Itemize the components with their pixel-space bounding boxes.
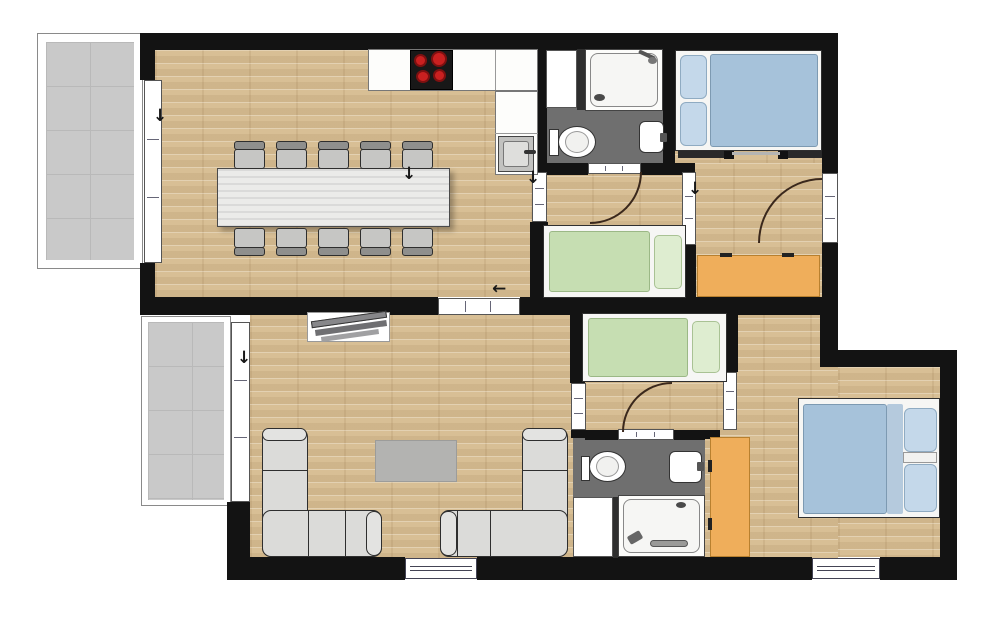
bed-green-lower-pillow (692, 321, 720, 373)
sofa-left-seam-2 (308, 511, 309, 556)
window-living (405, 558, 477, 579)
counter-seam-4 (495, 133, 538, 134)
burner-3 (416, 70, 430, 83)
wall-left-upper-a (140, 33, 155, 80)
bed-green-upper-pillow (654, 235, 682, 289)
chair-back (318, 247, 349, 256)
sofa-left-seam-3 (345, 511, 346, 556)
wardrobe-lower-handle-1 (708, 460, 712, 472)
entrance-door-frame (822, 173, 838, 243)
sofa-right-seam-2 (457, 511, 458, 556)
shower-upper-head (648, 57, 657, 64)
chair-seat (318, 228, 349, 248)
wall-divider-a (140, 297, 438, 315)
balcony-upper-tiles (46, 42, 134, 260)
kitchen-sink-basin (503, 141, 529, 167)
wardrobe-upper (697, 255, 820, 297)
arrow-corridor-right: ↓ (688, 181, 708, 201)
wall-right-upper-a (822, 33, 838, 173)
wall-framestub (571, 430, 585, 438)
counter-seam-3 (495, 50, 496, 90)
rug (375, 440, 457, 482)
bath-lower-cabinet (573, 497, 613, 557)
wall-bottom-a (227, 557, 405, 580)
bed-lower-shelf (903, 452, 937, 463)
burner-2 (431, 51, 447, 67)
chair-seat (234, 228, 265, 248)
toilet-upper-seat (565, 131, 589, 153)
arrow-balcony-upper: ↓ (153, 108, 173, 128)
wardrobe-upper-handle-1 (720, 253, 732, 257)
arrow-balcony-lower: ↓ (237, 350, 257, 370)
chair-back (234, 247, 265, 256)
sofa-left-seam-1 (263, 470, 307, 471)
sofa-left-cap-top (262, 428, 307, 441)
wardrobe-lower (710, 437, 750, 557)
bed-lower-pillow-1 (904, 408, 937, 452)
wall-bottom-c (880, 557, 957, 580)
arrow-kitchen: ↓ (402, 166, 422, 186)
chair-seat (318, 149, 349, 169)
chair-seat (276, 149, 307, 169)
burner-4 (433, 69, 446, 82)
bedroom-upper-threshold (732, 152, 780, 155)
wall-bathdoor-left (545, 163, 588, 175)
bath-upper-cabinet (546, 50, 577, 108)
bed-lower-mattress (803, 404, 887, 514)
bed-upper-pillow-2 (680, 102, 707, 146)
sofa-right-cap-top (522, 428, 567, 441)
bed-lower-pillow-2 (904, 464, 937, 512)
wall-step-vertical (820, 315, 838, 350)
wall-bedroom-thin-a (678, 151, 724, 158)
wall-lowerleft (227, 502, 250, 557)
wall-right-lower (940, 350, 957, 580)
kitchen-sink-faucet (524, 150, 536, 154)
chair-back (402, 247, 433, 256)
chair-back (360, 247, 391, 256)
bed-green-upper-mattress (549, 231, 650, 292)
kitchen-counter-top (368, 49, 538, 91)
bed-upper-pillow-1 (680, 55, 707, 99)
sofa-left-horizontal (262, 510, 382, 557)
wall-step-horizontal (820, 350, 957, 367)
wall-bedroom-thin-b (788, 151, 822, 158)
wall-bottom-b (477, 557, 812, 580)
shower-upper-drain (594, 94, 605, 101)
chair-seat (360, 149, 391, 169)
chair-seat (402, 228, 433, 248)
basin-upper-faucet (660, 133, 667, 142)
shower-lower-handle (650, 540, 688, 547)
basin-lower-faucet (697, 462, 704, 471)
wall-bathlower-left (585, 430, 618, 440)
shower-lower-drain (676, 502, 686, 508)
bed-upper-mattress (710, 54, 818, 147)
chair-seat (234, 149, 265, 169)
sofa-left-cap-end (366, 511, 382, 556)
chair-seat (360, 228, 391, 248)
bath-upper-divider (577, 49, 585, 110)
bed-green-lower-mattress (588, 318, 688, 377)
wardrobe-lower-handle-2 (708, 518, 712, 530)
arrow-corridor-left: ↓ (526, 170, 546, 190)
sofa-right-horizontal (440, 510, 568, 557)
window-bedroom-lower (812, 558, 880, 579)
wall-top (140, 33, 838, 50)
arrow-divider-door: ← (492, 281, 512, 301)
chair-seat (276, 228, 307, 248)
toilet-lower-seat (596, 456, 619, 477)
sofa-right-seam-1 (523, 470, 567, 471)
balcony-lower-tiles (148, 322, 224, 500)
wall-bath-bedroom (663, 50, 675, 163)
burner-1 (414, 54, 427, 67)
chair-back (276, 247, 307, 256)
wardrobe-upper-handle-2 (782, 253, 794, 257)
sofa-right-seam-3 (490, 511, 491, 556)
wall-left-upper-b (140, 263, 155, 300)
floor-plan: ↓↓↓↓←↓ (0, 0, 1000, 620)
bed-lower-strip (887, 404, 903, 514)
sofa-right-cap-end (440, 511, 457, 556)
wall-bathlower-right (672, 430, 705, 440)
living-corridor-door (571, 383, 586, 430)
